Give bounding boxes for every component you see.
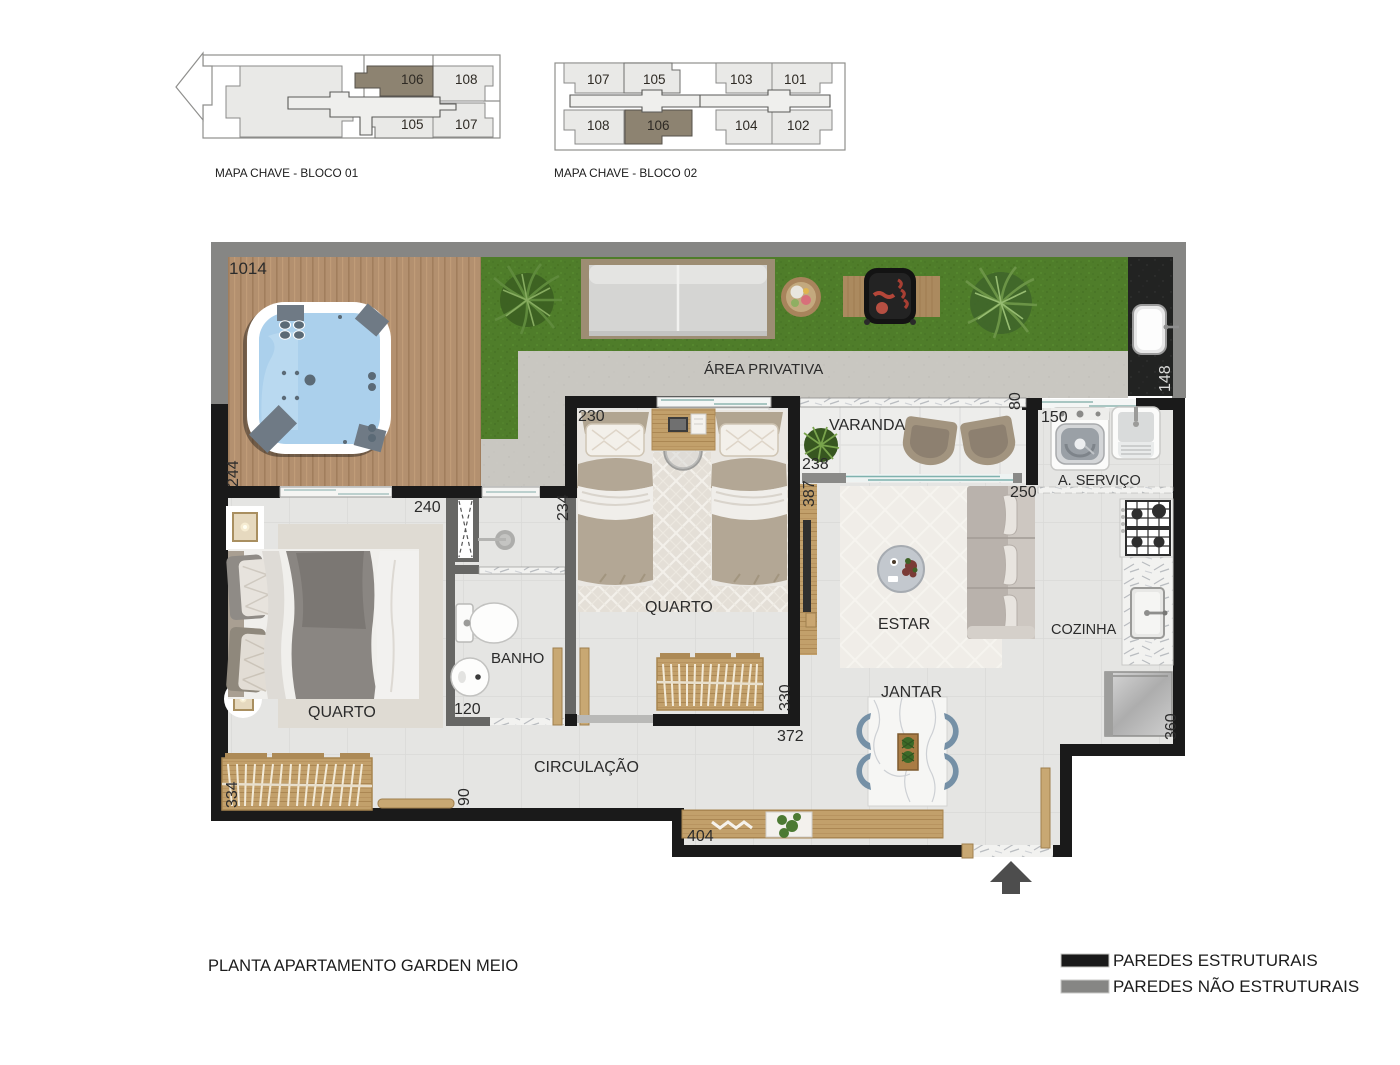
svg-text:VARANDA: VARANDA	[829, 417, 905, 434]
svg-text:90: 90	[456, 788, 473, 806]
svg-text:250: 250	[1010, 484, 1037, 501]
svg-text:148: 148	[1157, 365, 1174, 392]
svg-text:JANTAR: JANTAR	[881, 684, 942, 701]
svg-text:150: 150	[1041, 409, 1068, 426]
svg-text:PAREDES ESTRUTURAIS: PAREDES ESTRUTURAIS	[1113, 951, 1318, 970]
svg-text:ÁREA PRIVATIVA: ÁREA PRIVATIVA	[704, 361, 823, 378]
svg-text:1014: 1014	[229, 259, 267, 278]
svg-text:107: 107	[455, 117, 478, 132]
svg-text:MAPA CHAVE - BLOCO 01: MAPA CHAVE - BLOCO 01	[215, 166, 358, 180]
svg-text:108: 108	[455, 72, 478, 87]
svg-text:BANHO: BANHO	[491, 650, 544, 667]
svg-text:230: 230	[578, 408, 605, 425]
svg-text:240: 240	[414, 499, 441, 516]
svg-text:ESTAR: ESTAR	[878, 616, 930, 633]
svg-text:QUARTO: QUARTO	[308, 704, 376, 721]
svg-text:334: 334	[224, 781, 241, 808]
svg-text:108: 108	[587, 118, 610, 133]
svg-text:105: 105	[643, 72, 666, 87]
svg-text:360: 360	[1163, 713, 1180, 740]
svg-text:COZINHA: COZINHA	[1051, 622, 1117, 638]
svg-text:A. SERVIÇO: A. SERVIÇO	[1058, 473, 1141, 489]
svg-text:234: 234	[555, 494, 572, 521]
svg-text:106: 106	[401, 72, 424, 87]
svg-text:MAPA CHAVE - BLOCO 02: MAPA CHAVE - BLOCO 02	[554, 166, 697, 180]
svg-text:107: 107	[587, 72, 610, 87]
svg-text:PAREDES NÃO ESTRUTURAIS: PAREDES NÃO ESTRUTURAIS	[1113, 977, 1359, 996]
svg-text:244: 244	[225, 460, 242, 487]
svg-text:80: 80	[1007, 392, 1024, 410]
svg-text:372: 372	[777, 728, 804, 745]
svg-text:CIRCULAÇÃO: CIRCULAÇÃO	[534, 756, 639, 776]
svg-text:QUARTO: QUARTO	[645, 599, 713, 616]
svg-text:104: 104	[735, 118, 758, 133]
svg-text:120: 120	[454, 701, 481, 718]
svg-text:238: 238	[802, 456, 829, 473]
svg-text:387: 387	[801, 480, 818, 507]
svg-text:404: 404	[687, 828, 714, 845]
svg-text:330: 330	[777, 684, 794, 711]
svg-text:106: 106	[647, 118, 670, 133]
svg-text:PLANTA APARTAMENTO GARDEN MEIO: PLANTA APARTAMENTO GARDEN MEIO	[208, 957, 518, 975]
svg-text:101: 101	[784, 72, 807, 87]
svg-text:103: 103	[730, 72, 753, 87]
svg-text:105: 105	[401, 117, 424, 132]
svg-text:102: 102	[787, 118, 810, 133]
